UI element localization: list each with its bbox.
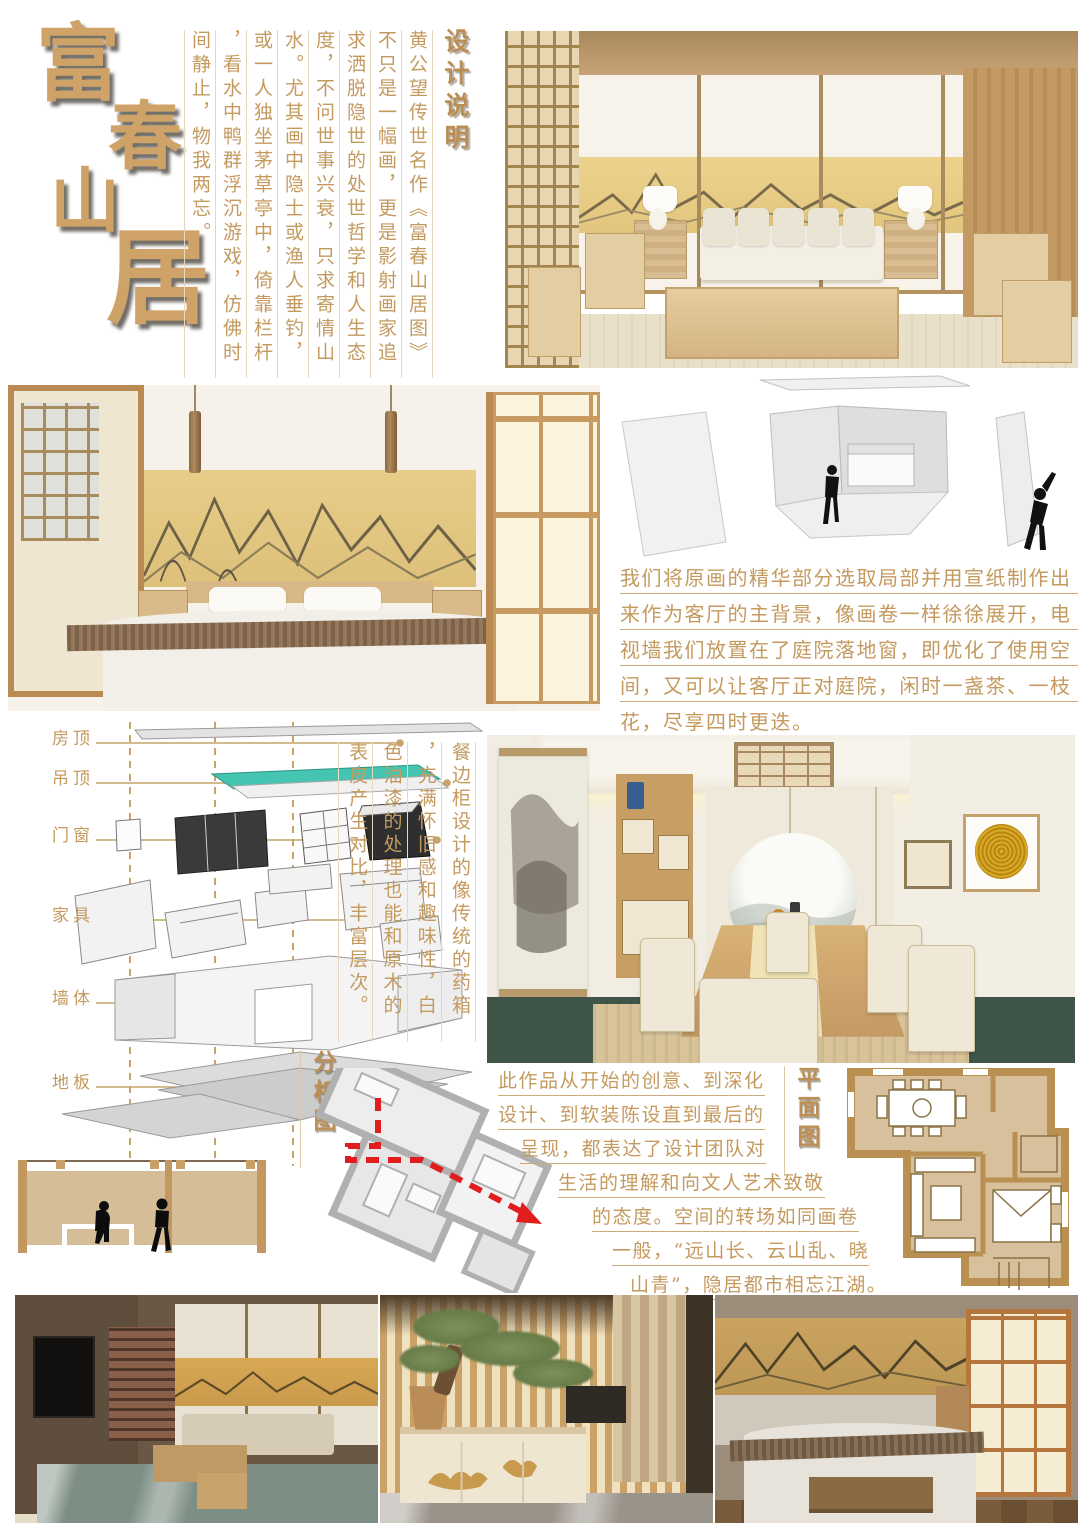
gold-dot-circle	[975, 824, 1029, 879]
paragraph-line: 来作为客厅的主背景，像画卷一样徐徐展开，电	[620, 598, 1078, 630]
design-notes-column: 或一人独坐茅草亭中，倚靠栏杆	[246, 30, 277, 378]
dark-edge	[686, 1295, 713, 1523]
closing-paragraph: 此作品从开始的创意、到深化 设计、到软装陈设直到最后的 呈现，都表达了设计团队对…	[498, 1066, 887, 1304]
sofa-pillow	[843, 208, 874, 246]
living-room-paragraph: 我们将原画的精华部分选取局部并用宣纸制作出 来作为客厅的主背景，像画卷一样徐徐展…	[620, 562, 1078, 742]
pendant-cord-right	[390, 385, 392, 411]
bottom-foyer-photo	[380, 1295, 713, 1523]
elevation-silhouettes	[78, 1198, 188, 1256]
paragraph-line: 呈现，都表达了设计团队对	[520, 1134, 766, 1164]
paragraph-line: 花，尽享四时更迭。	[620, 706, 820, 738]
paragraph-line: 的态度。空间的转场如同画卷	[592, 1202, 859, 1232]
bottom-bedroom-photo	[715, 1295, 1078, 1523]
sofa-pillow	[703, 208, 734, 246]
bottom-living-photo	[15, 1295, 378, 1523]
dining-note: 餐边柜设计的像传统的药箱 ，充满怀旧感和趣味性，白 色油漆的处理也能和原木的 表…	[338, 742, 476, 1042]
window-grid	[493, 392, 600, 705]
paragraph-line: 间，又可以让客厅正对庭院，闲时一盏茶、一枝	[620, 670, 1078, 702]
person-silhouette-seated	[95, 1201, 110, 1244]
pilaster-left	[18, 1160, 27, 1253]
mountain-handle-carvings	[400, 1434, 586, 1502]
door-glass-grid	[21, 403, 98, 541]
floor-plan-drawing	[843, 1062, 1073, 1294]
sofa-pillow	[808, 208, 839, 246]
design-notes-column: 求洒脱隐世的处世哲学和人生态	[339, 30, 370, 378]
scroll-landscape-art	[499, 748, 587, 997]
exploded-label-roof: 房顶	[52, 724, 94, 749]
design-notes-heading: 设计说明	[437, 28, 473, 178]
cabinet-drawer	[622, 819, 653, 854]
design-notes-column: 间静止，物我两忘。	[184, 30, 215, 378]
exploded-label-windows: 门窗	[52, 821, 94, 846]
elevation-drawing	[18, 1160, 266, 1256]
beam-block	[150, 1160, 159, 1169]
gold-circle-art	[963, 814, 1040, 892]
armchair-left-2	[528, 267, 582, 357]
beam-block	[246, 1160, 255, 1169]
roof-slab	[135, 723, 482, 739]
tv-screen	[33, 1336, 95, 1418]
sofa-pillow	[773, 208, 804, 246]
sculpture-base	[566, 1386, 626, 1422]
lattice-window	[966, 1309, 1070, 1497]
beam-block	[56, 1160, 65, 1169]
gold-mural-band	[715, 1318, 976, 1396]
coffee-table	[665, 287, 898, 358]
design-notes-body: 黄公望传世名作《富春山居图》 不只是一幅画，更是影射画家追 求洒脱隐世的处世哲学…	[193, 30, 433, 378]
design-notes-column: ，看水中鸭群浮沉游戏，仿佛时	[215, 30, 246, 378]
pilaster-right	[257, 1160, 266, 1253]
design-notes-column: 水。尤其画中隐士或渔人垂钓，	[277, 30, 308, 378]
blue-vase	[627, 782, 644, 808]
shoji-window	[486, 392, 600, 705]
mountain-ink-drawing	[144, 470, 476, 587]
dining-room-photo	[487, 735, 1075, 1063]
paragraph-line: 视墙我们放置在了庭院落地窗，即优化了使用空	[620, 634, 1078, 666]
paragraph-line: 设计、到软装陈设直到最后的	[498, 1100, 765, 1130]
exploded-label-walls: 墙体	[52, 984, 94, 1009]
design-notes-column: 黄公望传世名作《富春山居图》	[401, 30, 433, 378]
dining-chair-front	[699, 978, 819, 1063]
gold-mountain-mural	[144, 470, 476, 587]
dining-chair	[640, 938, 695, 1032]
foot-bench	[809, 1477, 932, 1509]
poster-canvas: 富 春 山 居 设计说明 黄公望传世名作《富春山居图》 不只是一幅画，更是影射画…	[0, 0, 1080, 1527]
small-wall-art	[904, 840, 951, 889]
living-room-photo	[505, 31, 1078, 368]
dining-note-column: 表皮产生对比，丰富层次。	[338, 742, 372, 1042]
exploded-label-floor: 地板	[52, 1068, 94, 1093]
gold-mural-band	[175, 1358, 378, 1406]
person-silhouette-walking	[151, 1199, 171, 1253]
bonsai-foliage	[400, 1345, 460, 1372]
dining-chair	[908, 945, 975, 1052]
side-table-right-2	[1002, 280, 1073, 363]
design-notes-column: 不只是一幅画，更是影射画家追	[370, 30, 401, 378]
bedroom-photo	[8, 385, 600, 711]
sofa-pillow	[738, 208, 769, 246]
paragraph-line: 我们将原画的精华部分选取局部并用宣纸制作出	[620, 562, 1078, 594]
exploded-label-furniture: 家具	[52, 901, 94, 926]
floor-plan-label: 平面图	[784, 1066, 823, 1176]
blind-window	[109, 1327, 174, 1441]
dining-note-column: 色油漆的处理也能和原木的	[372, 742, 406, 1042]
pendant-light-right	[385, 411, 397, 473]
pendant-light-left	[189, 411, 201, 473]
exploded-label-ceiling: 吊顶	[52, 764, 94, 789]
mountain-ink-drawing	[715, 1318, 976, 1396]
beam-block	[176, 1160, 185, 1169]
sideboard	[400, 1427, 586, 1502]
design-notes-column: 度，不问世事兴衰，只求寄情山	[308, 30, 339, 378]
cabinet-drawer	[658, 835, 689, 870]
lattice-light-fixture	[734, 742, 834, 791]
hanging-scroll-painting	[499, 748, 587, 997]
pendant-cord-left	[194, 385, 196, 411]
mountain-ink-drawing	[175, 1358, 378, 1406]
table-lamp-right-base	[907, 208, 925, 230]
dining-note-column: ，充满怀旧感和趣味性，白	[407, 742, 441, 1042]
sofa	[700, 226, 883, 280]
paragraph-line: 此作品从开始的创意、到深化	[498, 1066, 765, 1096]
dining-chair	[766, 912, 809, 973]
wood-stool	[197, 1473, 248, 1509]
armchair-left	[585, 233, 644, 309]
paragraph-line: 一般，“远山长、云山乱、晓	[612, 1236, 869, 1266]
white-room-model-diagram	[610, 374, 1078, 562]
dining-note-column: 餐边柜设计的像传统的药箱	[441, 742, 476, 1042]
